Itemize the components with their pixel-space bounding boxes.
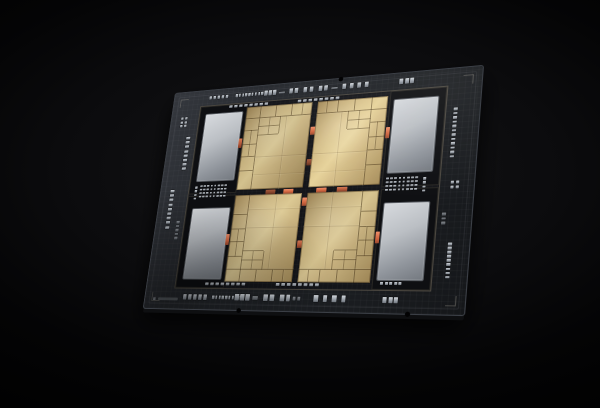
capacitor bbox=[176, 221, 180, 223]
capacitor bbox=[325, 97, 328, 100]
capacitor-group bbox=[174, 221, 180, 239]
capacitor-group bbox=[342, 82, 369, 90]
capacitor bbox=[393, 297, 398, 303]
capacitor bbox=[200, 185, 202, 187]
capacitor bbox=[203, 294, 207, 300]
etch-line bbox=[372, 108, 388, 110]
capacitor bbox=[397, 188, 400, 190]
capacitor bbox=[445, 272, 450, 275]
etch-line bbox=[366, 164, 382, 166]
capacitor bbox=[385, 189, 388, 191]
etch-line bbox=[347, 127, 370, 129]
capacitor bbox=[202, 196, 204, 198]
capacitor bbox=[453, 112, 457, 115]
substrate-marking bbox=[158, 297, 178, 300]
capacitor bbox=[446, 268, 451, 271]
capacitor bbox=[292, 297, 295, 301]
capacitor bbox=[411, 176, 414, 178]
capacitor bbox=[398, 181, 401, 183]
capacitor bbox=[287, 283, 291, 286]
capacitor bbox=[259, 102, 262, 105]
capacitor-group bbox=[303, 86, 313, 92]
capacitor bbox=[204, 185, 206, 187]
emib-bridge bbox=[296, 240, 301, 248]
capacitor bbox=[214, 185, 216, 187]
capacitor-group bbox=[165, 190, 175, 229]
compute-tile bbox=[297, 190, 379, 283]
capacitor bbox=[309, 283, 313, 286]
capacitor bbox=[411, 180, 414, 182]
capacitor bbox=[308, 98, 311, 101]
etch-line bbox=[241, 259, 262, 260]
capacitor bbox=[252, 296, 258, 300]
capacitor bbox=[276, 283, 280, 286]
capacitor bbox=[319, 97, 322, 100]
capacitor bbox=[174, 237, 178, 239]
capacitor bbox=[342, 84, 346, 90]
capacitor-group bbox=[252, 296, 258, 300]
capacitor bbox=[298, 283, 302, 286]
etch-line bbox=[318, 270, 320, 283]
capacitor-group bbox=[183, 294, 207, 300]
capacitor bbox=[289, 88, 293, 93]
capacitor bbox=[182, 163, 186, 166]
capacitor bbox=[214, 188, 216, 190]
capacitor-group bbox=[385, 176, 418, 191]
capacitor bbox=[322, 295, 327, 302]
capacitor bbox=[209, 195, 211, 197]
capacitor bbox=[245, 294, 250, 301]
etch-line bbox=[275, 105, 277, 116]
capacitor-group bbox=[263, 294, 274, 301]
capacitor bbox=[223, 195, 225, 197]
emib-bridge bbox=[301, 197, 307, 205]
etch-line bbox=[307, 270, 309, 283]
capacitor bbox=[193, 198, 196, 200]
capacitor bbox=[382, 297, 387, 303]
capacitor bbox=[446, 263, 451, 266]
tile-etch-pattern bbox=[308, 96, 388, 187]
capacitor bbox=[234, 104, 237, 107]
capacitor bbox=[297, 297, 300, 301]
capacitor bbox=[453, 116, 457, 119]
capacitor bbox=[406, 188, 409, 190]
capacitor-group bbox=[182, 137, 191, 171]
capacitor bbox=[394, 282, 397, 285]
etch-line bbox=[301, 103, 303, 115]
capacitor bbox=[251, 93, 254, 97]
capacitor bbox=[330, 96, 334, 99]
capacitor-group bbox=[450, 180, 459, 188]
capacitor bbox=[213, 192, 215, 194]
capacitor bbox=[226, 95, 229, 99]
capacitor-group bbox=[276, 283, 319, 286]
capacitor bbox=[279, 91, 285, 93]
fiducial-mark bbox=[180, 99, 189, 108]
capacitor bbox=[185, 117, 188, 120]
capacitor bbox=[206, 195, 208, 197]
capacitor bbox=[182, 168, 186, 171]
capacitor bbox=[298, 99, 301, 102]
capacitor bbox=[265, 102, 268, 105]
capacitor bbox=[386, 178, 389, 180]
capacitor bbox=[264, 90, 268, 95]
capacitor bbox=[224, 188, 226, 190]
capacitor bbox=[324, 85, 328, 91]
etch-line bbox=[233, 214, 247, 215]
capacitor bbox=[225, 184, 227, 186]
capacitor bbox=[414, 188, 417, 190]
capacitor bbox=[229, 105, 232, 108]
capacitor bbox=[350, 83, 354, 89]
capacitor bbox=[331, 295, 336, 302]
tile-etch-pattern bbox=[224, 193, 302, 282]
capacitor bbox=[281, 283, 285, 286]
capacitor-group bbox=[445, 242, 452, 278]
capacitor bbox=[198, 294, 202, 300]
capacitor bbox=[410, 188, 413, 190]
etch-line bbox=[268, 194, 278, 270]
tile-etch-pattern bbox=[297, 190, 379, 283]
capacitor bbox=[279, 295, 284, 302]
capacitor bbox=[166, 221, 170, 224]
capacitor bbox=[402, 188, 405, 190]
capacitor bbox=[315, 283, 319, 286]
capacitor bbox=[422, 189, 425, 192]
compute-tile bbox=[308, 96, 388, 187]
capacitor bbox=[309, 86, 313, 92]
capacitor bbox=[213, 195, 215, 197]
emib-bridge bbox=[316, 187, 327, 192]
capacitor bbox=[205, 282, 208, 285]
etch-line bbox=[251, 251, 254, 270]
etch-line bbox=[242, 250, 263, 251]
capacitor bbox=[184, 121, 187, 124]
capacitor bbox=[220, 191, 222, 193]
capacitor bbox=[404, 78, 408, 84]
capacitor bbox=[455, 180, 458, 183]
capacitor bbox=[394, 185, 397, 187]
compute-tile bbox=[224, 193, 302, 282]
capacitor bbox=[450, 150, 454, 153]
capacitor bbox=[255, 92, 258, 96]
emib-bridge bbox=[283, 189, 293, 194]
etch-line bbox=[348, 118, 371, 121]
capacitor bbox=[314, 98, 317, 101]
capacitor bbox=[217, 185, 219, 187]
capacitor bbox=[341, 295, 346, 302]
capacitor-group bbox=[209, 95, 228, 100]
capacitor bbox=[210, 192, 212, 194]
capacitor bbox=[188, 294, 192, 300]
capacitor bbox=[423, 181, 426, 184]
capacitor bbox=[389, 185, 392, 187]
capacitor bbox=[380, 282, 383, 285]
capacitor bbox=[303, 99, 306, 102]
capacitor bbox=[303, 87, 307, 93]
etch-line bbox=[306, 206, 362, 209]
capacitor bbox=[185, 141, 189, 144]
capacitor bbox=[221, 95, 224, 99]
capacitor bbox=[441, 217, 445, 220]
edge-notch bbox=[236, 308, 241, 313]
capacitor bbox=[200, 189, 202, 191]
capacitor-group bbox=[235, 92, 263, 98]
capacitor bbox=[384, 282, 387, 285]
capacitor bbox=[215, 295, 218, 299]
capacitor bbox=[394, 177, 397, 179]
capacitor bbox=[168, 208, 172, 211]
capacitor bbox=[303, 283, 307, 286]
etch-line bbox=[343, 250, 346, 269]
chip-package bbox=[143, 65, 484, 316]
capacitor bbox=[398, 185, 401, 187]
capacitor bbox=[385, 185, 388, 187]
capacitor bbox=[169, 199, 173, 202]
capacitor bbox=[210, 282, 213, 285]
capacitor bbox=[454, 107, 458, 110]
capacitor-group bbox=[313, 295, 346, 302]
capacitor bbox=[452, 129, 456, 132]
emib-bridge bbox=[306, 159, 311, 166]
capacitor bbox=[210, 185, 212, 187]
fiducial-mark bbox=[445, 296, 457, 307]
capacitor bbox=[313, 295, 318, 302]
capacitor bbox=[216, 195, 218, 197]
etch-line bbox=[364, 227, 368, 256]
etch-line bbox=[235, 229, 239, 256]
capacitor bbox=[207, 189, 209, 191]
capacitor bbox=[220, 195, 222, 197]
capacitor bbox=[239, 104, 242, 107]
capacitor bbox=[181, 117, 184, 120]
capacitor bbox=[455, 185, 458, 188]
capacitor bbox=[388, 297, 393, 303]
fiducial-mark bbox=[463, 74, 474, 84]
capacitor bbox=[215, 283, 218, 286]
capacitor bbox=[195, 186, 198, 188]
emib-bridge bbox=[337, 187, 348, 192]
compute-tile bbox=[236, 102, 312, 190]
capacitor bbox=[207, 185, 209, 187]
etch-line bbox=[304, 225, 360, 227]
capacitor bbox=[365, 82, 369, 88]
etch-line bbox=[271, 270, 273, 282]
etch-line bbox=[261, 251, 264, 270]
capacitor-group bbox=[292, 297, 299, 301]
capacitor bbox=[166, 217, 170, 220]
etch-line bbox=[326, 101, 328, 113]
capacitor bbox=[442, 212, 446, 215]
capacitor bbox=[203, 192, 205, 194]
capacitor bbox=[294, 88, 298, 94]
capacitor bbox=[239, 94, 242, 98]
capacitor-group bbox=[199, 184, 227, 198]
capacitor bbox=[336, 96, 340, 99]
capacitor-group bbox=[331, 87, 338, 89]
capacitor bbox=[184, 150, 188, 153]
capacitor bbox=[406, 184, 409, 186]
capacitor bbox=[241, 283, 244, 286]
capacitor bbox=[165, 226, 169, 229]
capacitor bbox=[450, 146, 454, 149]
capacitor bbox=[213, 96, 216, 100]
etch-line bbox=[333, 111, 342, 186]
capacitor bbox=[446, 259, 450, 262]
tile-etch-pattern bbox=[236, 102, 312, 190]
capacitor bbox=[451, 137, 455, 140]
capacitor bbox=[199, 196, 201, 198]
capacitor-group bbox=[441, 212, 446, 224]
etch-line bbox=[333, 259, 356, 260]
capacitor bbox=[194, 194, 197, 196]
capacitor bbox=[183, 154, 187, 157]
capacitor bbox=[450, 155, 454, 158]
capacitor bbox=[221, 188, 223, 190]
capacitor bbox=[393, 189, 396, 191]
capacitor bbox=[410, 78, 414, 84]
capacitor bbox=[415, 180, 418, 182]
etch-line bbox=[282, 270, 284, 282]
capacitor bbox=[170, 194, 174, 197]
capacitor bbox=[423, 177, 426, 180]
capacitor bbox=[398, 177, 401, 179]
etch-line bbox=[257, 133, 278, 135]
capacitor bbox=[415, 184, 418, 186]
capacitor-group bbox=[180, 117, 187, 127]
etch-line bbox=[291, 104, 293, 115]
capacitor bbox=[389, 189, 392, 191]
capacitor bbox=[217, 192, 219, 194]
capacitor bbox=[357, 82, 361, 88]
capacitor bbox=[254, 103, 257, 106]
capacitor bbox=[224, 191, 226, 193]
capacitor bbox=[180, 125, 183, 128]
capacitor bbox=[447, 255, 451, 258]
capacitor-group bbox=[279, 91, 285, 93]
capacitor bbox=[220, 283, 223, 286]
capacitor bbox=[450, 185, 453, 188]
capacitor bbox=[240, 294, 245, 301]
capacitor bbox=[203, 189, 205, 191]
emib-bridge bbox=[309, 127, 314, 135]
capacitor bbox=[210, 188, 212, 190]
etch-line bbox=[334, 249, 357, 250]
edge-notch bbox=[404, 311, 410, 316]
capacitor-group bbox=[234, 294, 249, 301]
capacitor bbox=[236, 283, 239, 286]
capacitor bbox=[217, 95, 220, 99]
capacitor bbox=[447, 251, 451, 254]
capacitor bbox=[209, 96, 212, 100]
capacitor bbox=[226, 283, 229, 286]
etch-line bbox=[226, 269, 240, 270]
capacitor bbox=[183, 159, 187, 162]
etch-line bbox=[355, 269, 371, 270]
capacitor bbox=[273, 90, 277, 95]
capacitor bbox=[168, 203, 172, 206]
capacitor bbox=[448, 242, 452, 245]
edge-notch bbox=[338, 76, 343, 81]
etch-line bbox=[239, 170, 253, 172]
capacitor bbox=[183, 125, 186, 128]
capacitor bbox=[268, 90, 272, 95]
capacitor bbox=[263, 294, 268, 301]
capacitor bbox=[228, 296, 231, 300]
background bbox=[0, 0, 600, 408]
capacitor bbox=[235, 94, 238, 98]
capacitor bbox=[185, 146, 189, 149]
capacitor bbox=[269, 294, 274, 301]
capacitor bbox=[221, 184, 223, 186]
capacitor-group bbox=[380, 282, 402, 285]
capacitor bbox=[195, 190, 198, 192]
etch-line bbox=[354, 99, 356, 111]
hbm-die bbox=[376, 201, 430, 281]
etch-line bbox=[337, 100, 339, 112]
capacitor bbox=[292, 283, 296, 286]
capacitor bbox=[451, 133, 455, 136]
capacitor bbox=[453, 120, 457, 123]
capacitor bbox=[390, 177, 393, 179]
capacitor bbox=[285, 295, 290, 302]
etch-line bbox=[246, 117, 260, 119]
capacitor bbox=[234, 294, 239, 301]
capacitor bbox=[415, 176, 418, 178]
capacitor-group bbox=[279, 295, 290, 302]
capacitor bbox=[176, 225, 180, 227]
capacitor bbox=[386, 181, 389, 183]
capacitor bbox=[199, 192, 201, 194]
capacitor-group bbox=[264, 90, 276, 96]
capacitor bbox=[399, 78, 403, 84]
capacitor bbox=[231, 283, 234, 286]
emib-bridge bbox=[265, 189, 275, 194]
capacitor bbox=[451, 142, 455, 145]
capacitor bbox=[212, 295, 215, 299]
capacitor bbox=[331, 87, 338, 89]
capacitor bbox=[186, 137, 190, 140]
capacitor bbox=[402, 184, 405, 186]
capacitor bbox=[403, 177, 406, 179]
capacitor bbox=[170, 190, 174, 193]
capacitor bbox=[402, 181, 405, 183]
etch-line bbox=[331, 251, 334, 270]
capacitor bbox=[390, 181, 393, 183]
capacitor bbox=[244, 104, 247, 107]
capacitor bbox=[398, 282, 401, 285]
etch-line bbox=[312, 150, 367, 154]
etch-line bbox=[335, 270, 337, 283]
capacitor bbox=[445, 276, 450, 279]
capacitor bbox=[447, 247, 451, 250]
capacitor bbox=[451, 181, 454, 184]
capacitor bbox=[441, 221, 445, 224]
capacitor bbox=[407, 177, 410, 179]
capacitor bbox=[180, 121, 183, 124]
hbm-die bbox=[387, 96, 440, 174]
capacitor bbox=[206, 192, 208, 194]
capacitor bbox=[422, 185, 425, 188]
capacitor bbox=[394, 181, 397, 183]
capacitor-group bbox=[399, 78, 414, 85]
capacitor-group bbox=[289, 88, 298, 94]
capacitor bbox=[175, 233, 179, 235]
capacitor bbox=[318, 86, 322, 92]
capacitor bbox=[249, 103, 252, 106]
capacitor bbox=[175, 229, 179, 231]
capacitor bbox=[167, 212, 171, 215]
